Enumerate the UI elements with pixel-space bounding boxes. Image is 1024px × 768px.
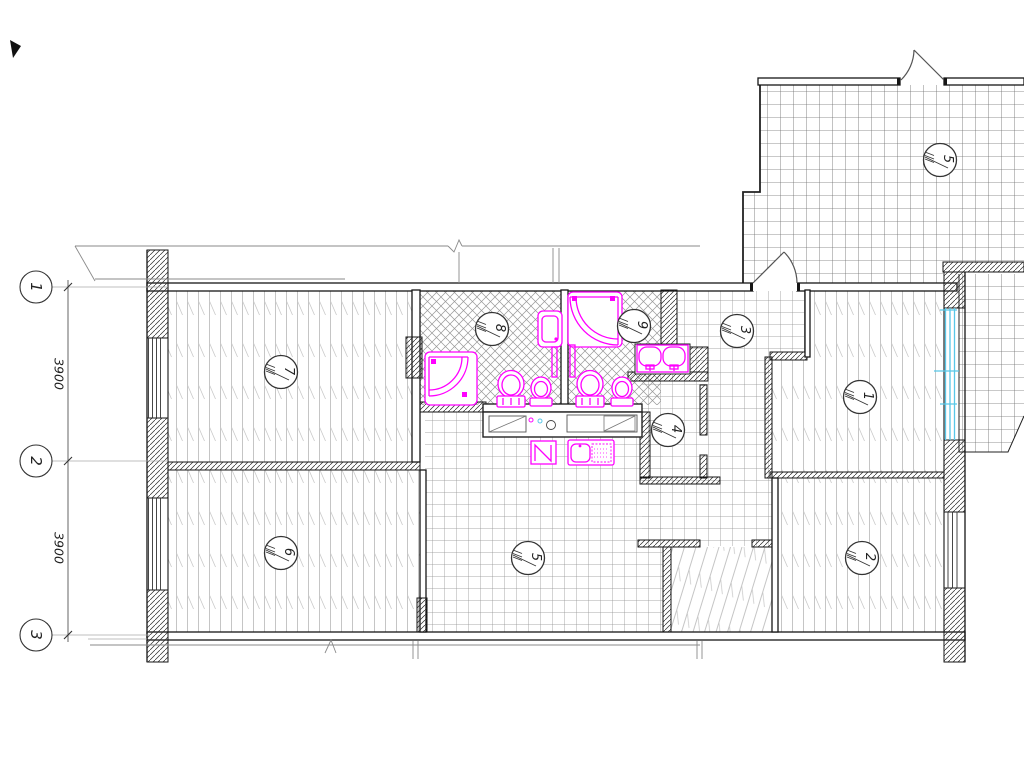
door-jamb xyxy=(944,78,947,85)
left-window-lower xyxy=(149,498,161,590)
left-pier-bottom xyxy=(147,590,168,662)
bidet-8 xyxy=(530,377,552,406)
room-label-4: 4 xyxy=(652,414,685,447)
room-label-5-hall: 5 xyxy=(512,542,545,575)
left-pier-mid xyxy=(147,418,168,498)
left-pier-top xyxy=(147,250,168,338)
corner-bathtub-8 xyxy=(425,352,477,405)
axis-label: 2 xyxy=(27,456,45,466)
axis-label: 3 xyxy=(27,630,45,640)
plumbing-pilaster xyxy=(406,337,422,378)
room-label-1: 1 xyxy=(844,381,877,414)
floor-plan-drawing: 7 8 9 xyxy=(0,0,1024,768)
room-label-3: 3 xyxy=(721,315,754,348)
terrace-top-wall-left xyxy=(758,78,900,85)
wall-room7-room6 xyxy=(168,462,420,470)
right-pier-bottom xyxy=(944,588,965,662)
door-arc-terrace-top xyxy=(901,50,914,80)
break-symbol xyxy=(325,640,336,653)
kitchen-sink xyxy=(568,440,614,465)
wall-room3-right xyxy=(805,290,810,357)
wall-room3-room1-h xyxy=(770,352,807,360)
wall-cabinet-fixture xyxy=(538,311,562,347)
right-window-lower xyxy=(948,512,957,588)
room-label-8: 8 xyxy=(476,313,509,346)
room-number: 2 xyxy=(862,553,877,561)
wall-stair-room2 xyxy=(772,478,778,632)
room-number: 7 xyxy=(281,367,296,376)
terrace-bottom-wall-band xyxy=(943,262,1024,272)
top-wall-right-segment xyxy=(797,283,957,291)
room-number: 8 xyxy=(492,324,507,332)
bottom-wall xyxy=(147,632,965,640)
wall-room4-right-lower xyxy=(700,455,707,478)
door-opening-room3-terrace xyxy=(753,283,797,291)
axis-marker-3: 3 xyxy=(20,619,52,651)
wall-room1-room2 xyxy=(770,472,944,478)
room-number: 4 xyxy=(668,425,683,433)
washing-machine xyxy=(531,441,556,464)
dimension-label: 3900 xyxy=(52,358,67,390)
toilet-9 xyxy=(576,371,604,408)
left-window-upper xyxy=(149,338,161,418)
wall-corridor-bottom-right xyxy=(752,540,772,547)
axis-marker-2: 2 xyxy=(20,445,52,477)
room-label-6: 6 xyxy=(265,537,298,570)
terrace-top-wall-right xyxy=(944,78,1024,85)
room-label-9: 9 xyxy=(618,310,651,343)
axis-label: 1 xyxy=(27,282,45,292)
door-jamb xyxy=(750,283,753,291)
room-label-5-terrace: 5 xyxy=(924,144,957,177)
wall-bath8-bath9 xyxy=(561,290,568,405)
door-leaf-terrace-top xyxy=(914,50,944,80)
drawing-cut-mark xyxy=(10,40,21,58)
room-number: 1 xyxy=(860,392,875,400)
wall-room1-corridor-v xyxy=(765,357,772,478)
wall-room4-right-upper xyxy=(700,385,707,435)
wall-corridor-bottom-left xyxy=(638,540,700,547)
axis-marker-1: 1 xyxy=(20,271,52,303)
room-number: 3 xyxy=(737,326,752,334)
wall-hall-stair xyxy=(663,547,671,632)
wall-bath9-room3 xyxy=(661,290,677,347)
room-label-2: 2 xyxy=(846,542,879,575)
floor-plan-canvas: 7 8 9 xyxy=(0,0,1024,768)
bidet-9 xyxy=(611,377,633,406)
pier-sink-corner xyxy=(690,347,708,372)
door-jamb xyxy=(897,78,900,85)
wall-room4-bottom xyxy=(640,477,720,484)
corner-bathtub-9 xyxy=(568,292,622,347)
right-pier-mid xyxy=(944,440,965,512)
right-pier-top xyxy=(944,272,965,308)
dimension-label: 3900 xyxy=(52,532,67,564)
wall-room6-hall-pier xyxy=(417,598,427,632)
room-number: 6 xyxy=(281,548,296,556)
toilet-8 xyxy=(497,371,525,408)
balcony-slant-edge xyxy=(75,246,95,281)
door-jamb xyxy=(797,283,800,291)
kitchen-counter xyxy=(483,412,642,437)
room-number: 5 xyxy=(528,553,543,561)
terrace-right-floor xyxy=(959,274,1024,452)
room-number: 5 xyxy=(940,155,955,163)
axis-grid: 1 2 3 3900 3900 xyxy=(20,271,168,651)
break-symbol xyxy=(448,240,462,252)
double-washbasins xyxy=(635,344,690,374)
room-label-7: 7 xyxy=(265,356,298,389)
stair-area-floor xyxy=(670,547,772,632)
room-number: 9 xyxy=(634,321,649,329)
